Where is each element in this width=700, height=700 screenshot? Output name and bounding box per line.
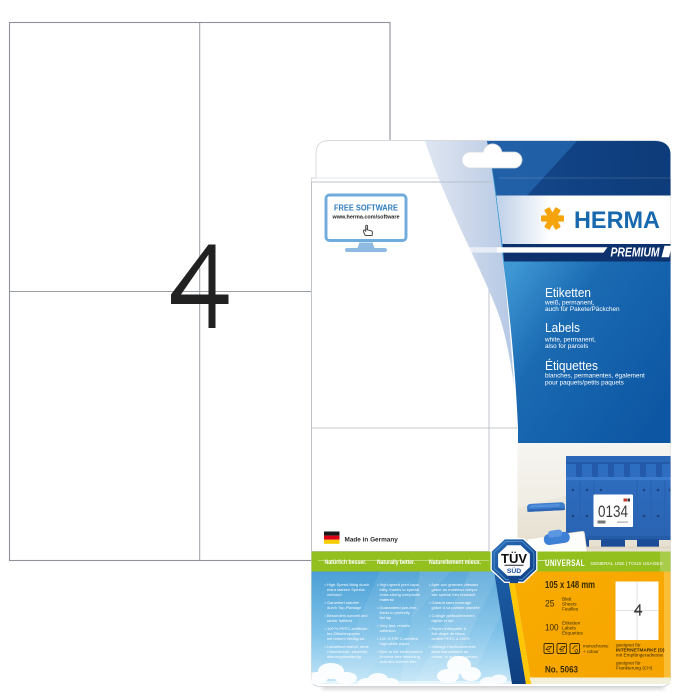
svg-text:Labels: Labels: [545, 320, 580, 335]
svg-text:also for parcels: also for parcels: [545, 343, 588, 350]
svg-text:Étiquettes: Étiquettes: [545, 358, 598, 373]
svg-text:certifié PEFC à 100%: certifié PEFC à 100%: [432, 636, 471, 641]
svg-text:PREMIUM: PREMIUM: [611, 246, 660, 260]
svg-text:www.herma.com/software: www.herma.com/software: [332, 215, 400, 221]
svg-text:site spécial très résistant: site spécial très résistant: [432, 592, 477, 597]
svg-text:Naturellement mieux.: Naturellement mieux.: [429, 559, 481, 566]
svg-text:mit hohem Weißgrad: mit hohem Weißgrad: [327, 636, 364, 641]
svg-text:GENERAL USE | TOUS USAGES: GENERAL USE | TOUS USAGES: [591, 561, 663, 567]
svg-text:material: material: [380, 597, 394, 602]
svg-text:sicher haftend: sicher haftend: [327, 618, 352, 623]
svg-text:flat lay: flat lay: [380, 615, 392, 620]
svg-text:pour paquets/petits paquets: pour paquets/petits paquets: [545, 380, 624, 387]
svg-text:chlore, ni acide, ni solvant: chlore, ni acide, ni solvant: [432, 654, 479, 659]
svg-text:105 x 148 mm: 105 x 148 mm: [545, 580, 595, 591]
svg-text:high-white paper: high-white paper: [380, 641, 410, 646]
svg-text:HERMA: HERMA: [574, 207, 660, 234]
svg-text:No. 5063: No. 5063: [545, 665, 578, 676]
svg-text:TÜV: TÜV: [501, 551, 528, 566]
svg-text:alterungsbeständig: alterungsbeständig: [327, 654, 361, 659]
svg-text:+ colour: + colour: [583, 649, 599, 654]
svg-text:blanches, permanentes, égaleme: blanches, permanentes, également: [545, 373, 645, 380]
svg-text:adhesion: adhesion: [380, 628, 396, 633]
svg-text:FREE SOFTWARE: FREE SOFTWARE: [334, 203, 398, 213]
svg-text:Made in Germany: Made in Germany: [345, 537, 399, 544]
svg-text:Naturally better.: Naturally better.: [377, 559, 415, 566]
svg-text:mit Empfängeradresse: mit Empfängeradresse: [616, 653, 664, 658]
svg-text:auch für Pakete/Päckchen: auch für Pakete/Päckchen: [545, 306, 620, 313]
svg-text:0134: 0134: [598, 502, 628, 521]
svg-text:25: 25: [545, 599, 555, 609]
svg-text:verbund: verbund: [327, 592, 341, 597]
svg-text:Natürlich besser.: Natürlich besser.: [325, 559, 367, 566]
svg-text:rapide et sûr: rapide et sûr: [432, 618, 455, 623]
svg-text:Étiquettes: Étiquettes: [562, 630, 584, 636]
svg-text:UNIVERSAL: UNIVERSAL: [545, 558, 585, 569]
svg-text:monochrome: monochrome: [583, 644, 609, 649]
svg-text:Etiketten: Etiketten: [545, 285, 591, 300]
svg-text:durch Top-Planlage: durch Top-Planlage: [327, 605, 362, 610]
svg-text:SÜD: SÜD: [507, 566, 521, 575]
svg-text:grâce à sa parfaite planéité: grâce à sa parfaite planéité: [432, 605, 481, 610]
svg-text:Frankierung (CH): Frankierung (CH): [616, 666, 653, 671]
svg-text:acid and solvent-free: acid and solvent-free: [380, 659, 418, 664]
svg-text:100: 100: [545, 623, 559, 633]
svg-text:Feuilles: Feuilles: [562, 607, 579, 612]
